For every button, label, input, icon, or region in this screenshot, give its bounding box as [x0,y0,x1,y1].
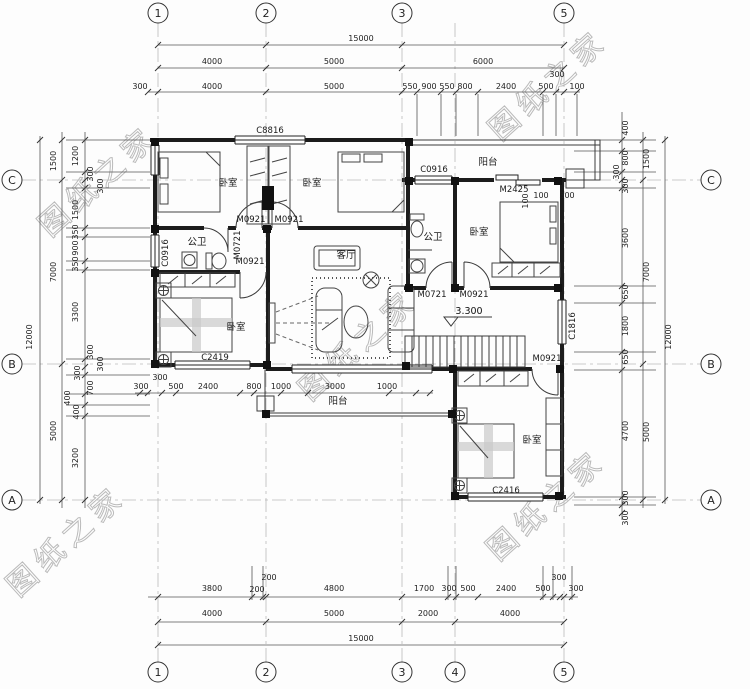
grid-bubble-label: 2 [263,666,270,679]
dim-label: 300 [549,70,564,79]
bed [458,424,514,478]
grid-bubble-B: B [2,354,22,374]
dim-label: 1200 [71,146,80,166]
dim-label: 7000 [642,262,651,282]
dim-label: 2400 [496,82,516,91]
dim-label: 300 [559,191,574,200]
column [405,138,413,146]
dim-label: 550 [439,82,454,91]
bed [160,298,232,352]
dim-label: 5000 [49,421,58,441]
grid-bubble-label: B [707,358,715,371]
dim-label: 3800 [202,584,222,593]
dim-label: 7000 [49,262,58,282]
bed [500,202,558,262]
dim-label: 4000 [202,57,222,66]
dim-label: 500 [535,584,550,593]
dim-label: 100 [569,82,584,91]
dim-label: 5000 [324,609,344,618]
grid-bubble-3: 3 [392,3,412,23]
grid-bubble-label: 1 [155,666,162,679]
door-code: M2425 [500,185,529,195]
dim-label: 300 [621,490,630,505]
window-C0916-top [415,176,452,184]
dim-label: 15000 [348,634,373,643]
dim-label: 1500 [49,151,58,171]
door-code: M0921 [237,215,266,225]
dim-label: 300 [73,365,82,380]
tv [269,296,332,350]
column [405,177,413,185]
dim-label: 400 [72,404,81,419]
floor-plan-page: 图纸之家 图纸之家 图纸之家 图纸之家 图纸之家 [0,0,750,689]
dim-label: 6000 [473,57,493,66]
floor-plan-canvas: 图纸之家 图纸之家 图纸之家 图纸之家 图纸之家 [0,0,750,689]
grid-bubble-label: 5 [561,666,568,679]
dim-label: 1000 [271,382,291,391]
dim-label: 800 [246,382,261,391]
dim-label: 500 [168,382,183,391]
dim-label: 650 [621,284,630,299]
dim-label: 400 [621,120,630,135]
bed [158,152,220,212]
dim-label: 1500 [71,200,80,220]
dim-label: 900 [421,82,436,91]
grid-bubble-label: A [707,494,715,507]
grid-bubble-A: A [701,490,721,510]
window-code: C2419 [201,353,229,363]
room-label-bathroom: 公卫 [187,237,207,248]
grid-bubble-B: B [701,354,721,374]
dim-label: 3600 [621,228,630,248]
room-label-bedroom: 卧室 [226,321,245,333]
level-mark: 3.300 [455,306,482,317]
door-code: M0721 [233,231,243,260]
column [263,361,271,369]
dim-label: 100 [533,191,548,200]
column [151,360,159,368]
column [151,225,159,233]
dim-label: 400 [63,390,72,405]
window-code: C8816 [256,126,284,136]
dim-label: 550 [402,82,417,91]
column [451,177,459,185]
wardrobe [458,371,528,386]
window-code: C0916 [161,239,171,267]
wardrobe [247,146,290,224]
dim-label: 800 [457,82,472,91]
toilet [410,214,424,237]
door-code: M0921 [236,257,265,267]
dim-label: 1000 [377,382,397,391]
column [555,492,563,500]
dim-label: 1500 [642,149,651,169]
grid-bubble-label: 5 [561,7,568,20]
room-label-livingroom: 客厅 [336,249,356,261]
dim-label: 3300 [71,302,80,322]
closet [546,398,562,476]
dim-label: 1700 [414,584,434,593]
grid-bubble-A: A [2,490,22,510]
dim-label: 5000 [642,422,651,442]
window-C1816 [558,300,566,344]
dim-label: 700 [86,380,95,395]
door-code: M0921 [275,215,304,225]
window-C8816 [235,136,305,144]
dim-label: 300 [86,344,95,359]
furniture [156,146,562,493]
grid-bubble-label: 4 [452,666,459,679]
dim-label: 200 [261,573,276,582]
dim-label: 12000 [664,324,673,349]
dim-label: 2400 [496,584,516,593]
column [405,284,413,292]
room-label-balcony: 阳台 [328,395,347,407]
dim-label: 300 [96,356,105,371]
window-C0916-left [151,235,159,267]
column [151,269,159,277]
door-code: M0921 [533,354,562,364]
dim-label: 4000 [500,609,520,618]
door-code: M0721 [418,290,447,300]
dim-label: 3200 [71,448,80,468]
grid-bubble-label: C [707,174,715,187]
dim-label: 4000 [202,82,222,91]
dim-label: 3000 [325,382,345,391]
grid-bubble-4: 4 [445,662,465,682]
dim-label: 300 [441,584,456,593]
door-code: M0921 [460,290,489,300]
dim-label: 5000 [324,57,344,66]
watermarks: 图纸之家 图纸之家 图纸之家 图纸之家 图纸之家 [0,23,615,604]
dim-label: 4000 [202,609,222,618]
dim-label: 15000 [348,34,373,43]
column [451,284,459,292]
dim-label: 900 [71,240,80,255]
window-code: C2416 [492,486,520,496]
watermark-text: 图纸之家 [480,443,613,568]
dim-label: 100 [521,193,530,208]
grid-bubble-label: 3 [399,666,406,679]
room-label-balcony: 阳台 [478,156,497,168]
dim-label: 2000 [418,609,438,618]
dim-label: 300 [621,178,630,193]
grid-bubble-C: C [701,170,721,190]
column [151,138,159,146]
column [448,410,456,418]
window-code: C0916 [420,165,448,175]
dim-label: 800 [621,150,630,165]
grid-bubble-1: 1 [148,3,168,23]
dim-label: 350 [71,224,80,239]
grid-bubble-2: 2 [256,3,276,23]
grid-bubble-2: 2 [256,662,276,682]
column [402,362,410,370]
dim-label: 5000 [324,82,344,91]
dim-label: 4800 [324,584,344,593]
dim-label: 650 [621,349,630,364]
column [554,284,562,292]
dim-label: 300 [86,166,95,181]
dim-label: 4700 [621,421,630,441]
grid-bubble-label: C [8,174,16,187]
room-label-bedroom: 卧室 [469,226,488,238]
dim-label: 300 [612,164,621,179]
dim-label: 200 [249,585,264,594]
dim-label: 300 [132,82,147,91]
wardrobe [492,263,560,277]
column [449,365,457,373]
column [554,177,562,185]
toilet [206,253,226,269]
window-code: C1816 [568,312,578,340]
dim-label: 500 [538,82,553,91]
window-living-south [292,365,432,373]
level-mark-symbol [444,317,492,326]
dim-label: 300 [133,382,148,391]
grid-bubble-1: 1 [148,662,168,682]
grid-bubble-3: 3 [392,662,412,682]
dim-label: 500 [460,584,475,593]
bed [338,152,404,212]
column [451,492,459,500]
room-label-bedroom: 卧室 [218,177,237,189]
dim-label: 350 [71,256,80,271]
dim-label: 300 [152,373,167,382]
dim-label: 12000 [25,324,34,349]
grid-bubble-5: 5 [554,3,574,23]
stairs [405,336,525,367]
room-label-bathroom: 公卫 [423,232,443,243]
washbasin [182,252,197,268]
column [262,410,270,418]
dim-label: 300 [621,510,630,525]
dim-label: 1800 [621,316,630,336]
dim-label: 300 [568,584,583,593]
column [556,365,564,373]
room-label-bedroom: 卧室 [522,434,541,446]
dim-label: 300 [96,178,105,193]
washbasin [409,259,425,273]
column [263,225,271,233]
dim-label: 300 [551,573,566,582]
grid-bubble-label: B [8,358,16,371]
dim-label: 2400 [198,382,218,391]
grid-bubble-5: 5 [554,662,574,682]
grid-bubble-label: 1 [155,7,162,20]
grid-bubble-C: C [2,170,22,190]
room-label-bedroom: 卧室 [302,177,321,189]
grid-bubble-label: 3 [399,7,406,20]
grid-bubble-label: A [8,494,16,507]
grid-bubble-label: 2 [263,7,270,20]
